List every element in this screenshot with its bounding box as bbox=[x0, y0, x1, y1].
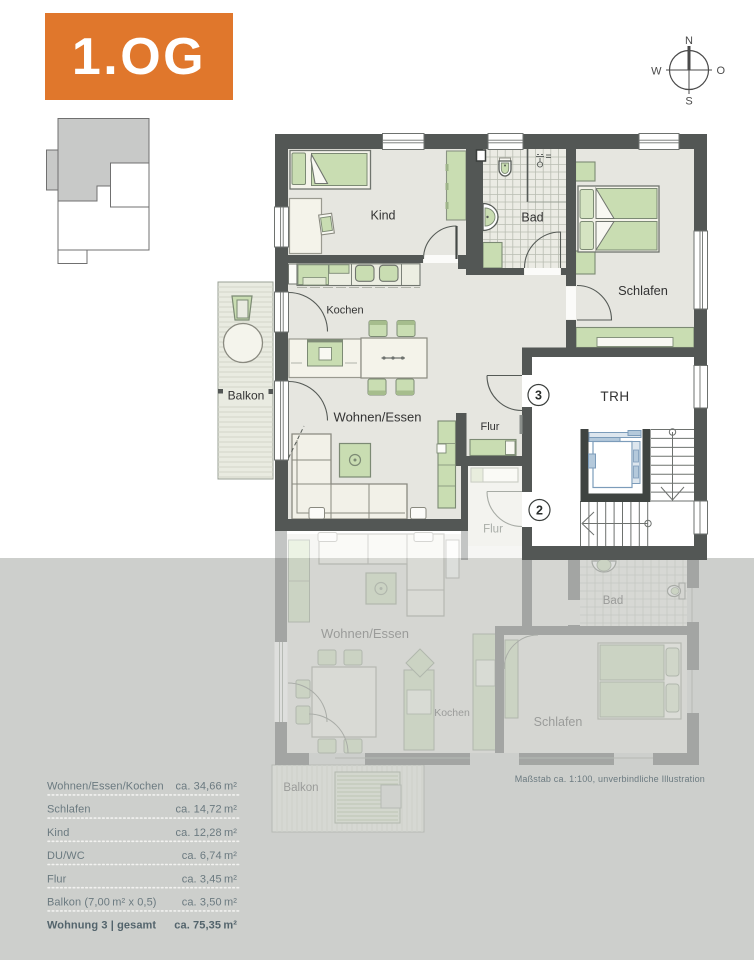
svg-text:W: W bbox=[651, 66, 662, 78]
svg-text:Balkon: Balkon bbox=[228, 389, 265, 403]
svg-text:2: 2 bbox=[536, 504, 543, 518]
svg-text:ca. 75,35 m²: ca. 75,35 m² bbox=[174, 920, 237, 932]
svg-text:Wohnen/Essen: Wohnen/Essen bbox=[321, 626, 409, 641]
svg-text:1.OG: 1.OG bbox=[72, 28, 206, 86]
svg-text:Wohnen/Essen: Wohnen/Essen bbox=[334, 410, 422, 425]
svg-text:TRH: TRH bbox=[600, 389, 629, 404]
svg-text:Wohnen/Essen/Kochen: Wohnen/Essen/Kochen bbox=[47, 781, 164, 793]
svg-text:Kind: Kind bbox=[370, 209, 395, 223]
svg-text:3: 3 bbox=[535, 389, 542, 403]
svg-text:Bad: Bad bbox=[603, 595, 623, 607]
svg-text:Flur: Flur bbox=[481, 421, 500, 433]
svg-text:Flur: Flur bbox=[483, 524, 503, 536]
svg-text:ca. 6,74 m²: ca. 6,74 m² bbox=[182, 850, 238, 862]
svg-text:ca. 3,50 m²: ca. 3,50 m² bbox=[182, 897, 238, 909]
svg-text:Schlafen: Schlafen bbox=[534, 715, 583, 729]
svg-text:Schlafen: Schlafen bbox=[618, 283, 668, 298]
svg-text:Maßstab ca. 1:100, unverbindli: Maßstab ca. 1:100, unverbindliche Illust… bbox=[515, 774, 705, 784]
svg-text:ca. 3,45 m²: ca. 3,45 m² bbox=[182, 873, 238, 885]
svg-text:Kochen: Kochen bbox=[326, 305, 363, 317]
svg-text:Balkon (7,00 m² x 0,5): Balkon (7,00 m² x 0,5) bbox=[47, 897, 157, 909]
svg-text:DU/WC: DU/WC bbox=[47, 850, 85, 862]
svg-text:ca. 34,66 m²: ca. 34,66 m² bbox=[176, 781, 238, 793]
svg-text:ca. 14,72 m²: ca. 14,72 m² bbox=[176, 804, 238, 816]
svg-text:S: S bbox=[685, 96, 692, 108]
svg-text:Kind: Kind bbox=[47, 827, 69, 839]
svg-text:Schlafen: Schlafen bbox=[47, 804, 91, 816]
svg-text:O: O bbox=[717, 65, 726, 77]
svg-text:Kochen: Kochen bbox=[434, 707, 470, 719]
svg-text:Balkon: Balkon bbox=[283, 782, 318, 794]
svg-text:N: N bbox=[685, 35, 693, 47]
svg-text:Bad: Bad bbox=[521, 211, 543, 225]
svg-text:ca. 12,28 m²: ca. 12,28 m² bbox=[176, 827, 238, 839]
svg-text:Wohnung 3 | gesamt: Wohnung 3 | gesamt bbox=[47, 920, 156, 932]
svg-text:Flur: Flur bbox=[47, 873, 67, 885]
